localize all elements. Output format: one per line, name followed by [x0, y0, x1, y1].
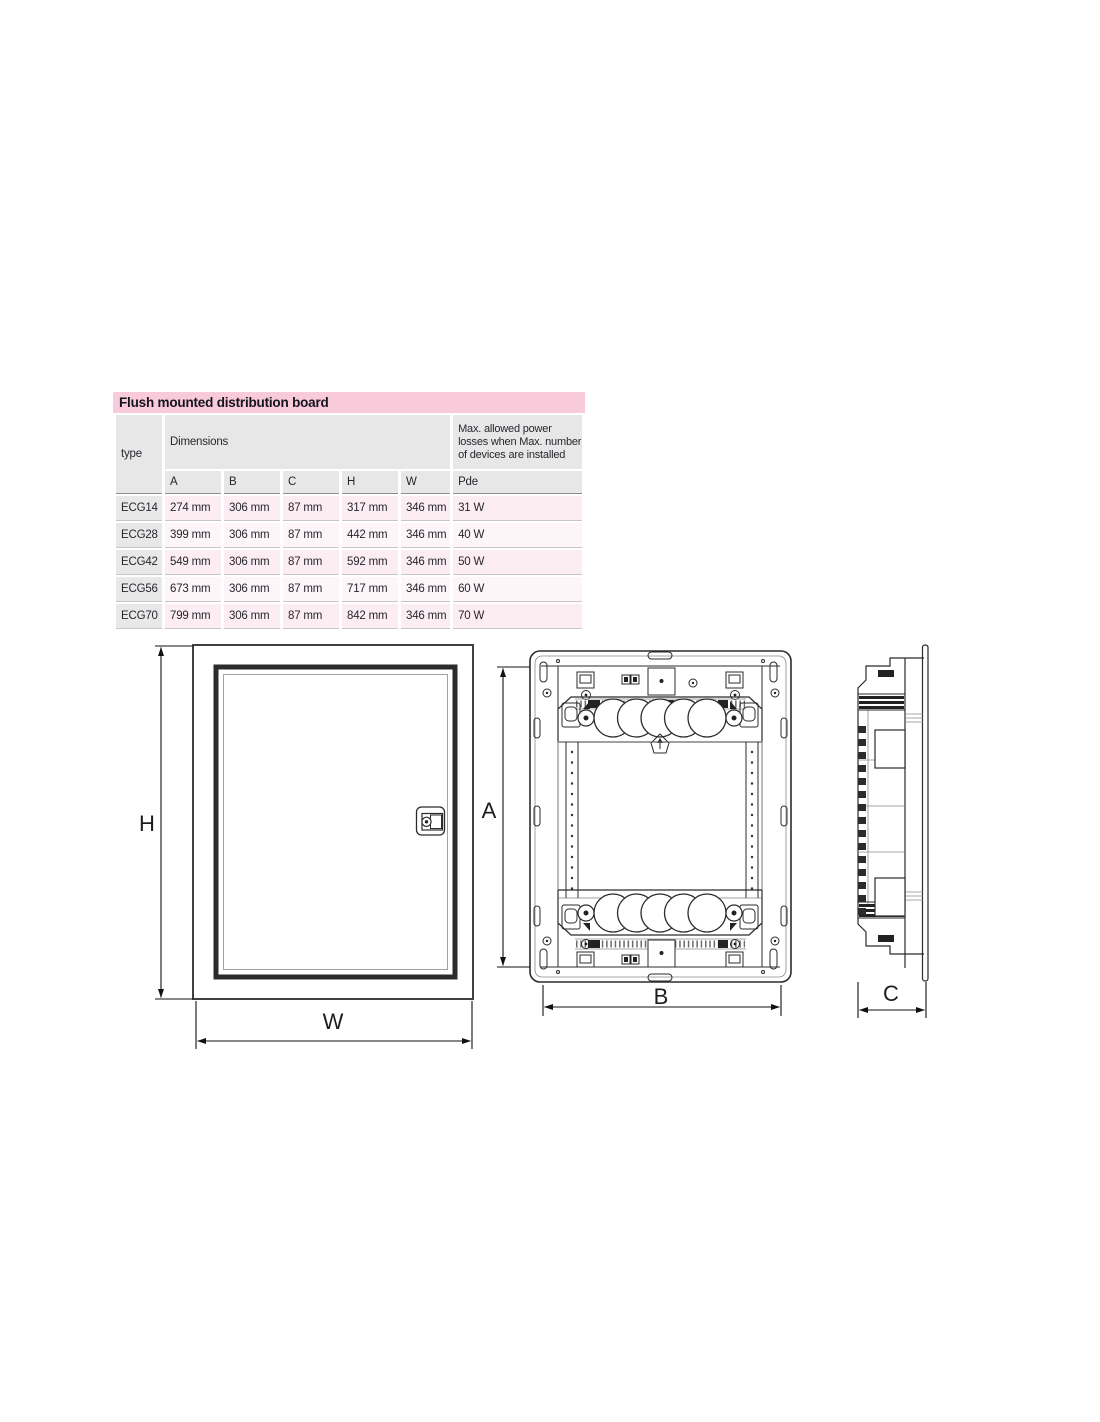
dim-label-a: A [482, 798, 497, 823]
cell-a: 274 mm [165, 496, 221, 521]
cell-type: ECG42 [116, 550, 162, 575]
cell-b: 306 mm [224, 523, 280, 548]
cell-h: 317 mm [342, 496, 398, 521]
cell-pde: 40 W [453, 523, 582, 548]
cell-c: 87 mm [283, 577, 339, 602]
cell-type: ECG56 [116, 577, 162, 602]
cell-w: 346 mm [401, 577, 450, 602]
door-handle [417, 807, 445, 835]
cell-h: 842 mm [342, 604, 398, 629]
dimension-c: C [858, 981, 926, 1018]
table-title: Flush mounted distribution board [113, 392, 585, 413]
table-row: ECG56 673 mm 306 mm 87 mm 717 mm 346 mm … [116, 577, 582, 602]
dimension-w: W [196, 1001, 472, 1049]
table-row: ECG14 274 mm 306 mm 87 mm 317 mm 346 mm … [116, 496, 582, 521]
cell-pde: 50 W [453, 550, 582, 575]
cell-c: 87 mm [283, 604, 339, 629]
col-header-h: H [342, 471, 398, 494]
cell-pde: 60 W [453, 577, 582, 602]
cell-w: 346 mm [401, 496, 450, 521]
dim-label-c: C [883, 981, 899, 1006]
cell-c: 87 mm [283, 496, 339, 521]
dim-label-h: H [139, 811, 155, 836]
cell-a: 673 mm [165, 577, 221, 602]
cell-type: ECG70 [116, 604, 162, 629]
cell-b: 306 mm [224, 550, 280, 575]
cell-type: ECG28 [116, 523, 162, 548]
col-header-pde: Pde [453, 471, 582, 494]
technical-drawings: H W [120, 630, 960, 1060]
header-row-2: A B C H W Pde [116, 471, 582, 494]
dimension-a: A [482, 667, 530, 967]
cell-a: 799 mm [165, 604, 221, 629]
table-row: ECG28 399 mm 306 mm 87 mm 442 mm 346 mm … [116, 523, 582, 548]
header-row-1: type Dimensions Max. allowed power losse… [116, 415, 582, 469]
cell-c: 87 mm [283, 523, 339, 548]
frame-view-drawing: A B [482, 651, 791, 1016]
cell-h: 592 mm [342, 550, 398, 575]
cell-w: 346 mm [401, 604, 450, 629]
front-view-drawing: H W [139, 645, 473, 1049]
col-header-c: C [283, 471, 339, 494]
cell-type: ECG14 [116, 496, 162, 521]
dim-label-w: W [323, 1009, 344, 1034]
cell-h: 717 mm [342, 577, 398, 602]
col-header-type: type [116, 415, 162, 494]
col-header-dimensions: Dimensions [165, 415, 450, 469]
cell-b: 306 mm [224, 604, 280, 629]
cell-w: 346 mm [401, 523, 450, 548]
col-header-b: B [224, 471, 280, 494]
cell-a: 399 mm [165, 523, 221, 548]
dimension-b: B [543, 984, 781, 1016]
table-row: ECG70 799 mm 306 mm 87 mm 842 mm 346 mm … [116, 604, 582, 629]
cell-b: 306 mm [224, 496, 280, 521]
spec-table-section: Flush mounted distribution board type Di… [113, 392, 585, 631]
front-flange [923, 645, 929, 981]
cell-pde: 31 W [453, 496, 582, 521]
cell-h: 442 mm [342, 523, 398, 548]
cell-w: 346 mm [401, 550, 450, 575]
spec-table: type Dimensions Max. allowed power losse… [113, 413, 585, 631]
dim-label-b: B [654, 984, 669, 1009]
cell-b: 306 mm [224, 577, 280, 602]
col-header-w: W [401, 471, 450, 494]
col-header-power-note: Max. allowed power losses when Max. numb… [453, 415, 582, 469]
cell-c: 87 mm [283, 550, 339, 575]
col-header-a: A [165, 471, 221, 494]
cable-clamp-top [858, 670, 905, 710]
side-view-drawing: C [858, 645, 928, 1018]
datasheet-page: Flush mounted distribution board type Di… [0, 0, 1100, 1422]
cell-a: 549 mm [165, 550, 221, 575]
dimension-h: H [139, 646, 193, 999]
table-row: ECG42 549 mm 306 mm 87 mm 592 mm 346 mm … [116, 550, 582, 575]
cell-pde: 70 W [453, 604, 582, 629]
